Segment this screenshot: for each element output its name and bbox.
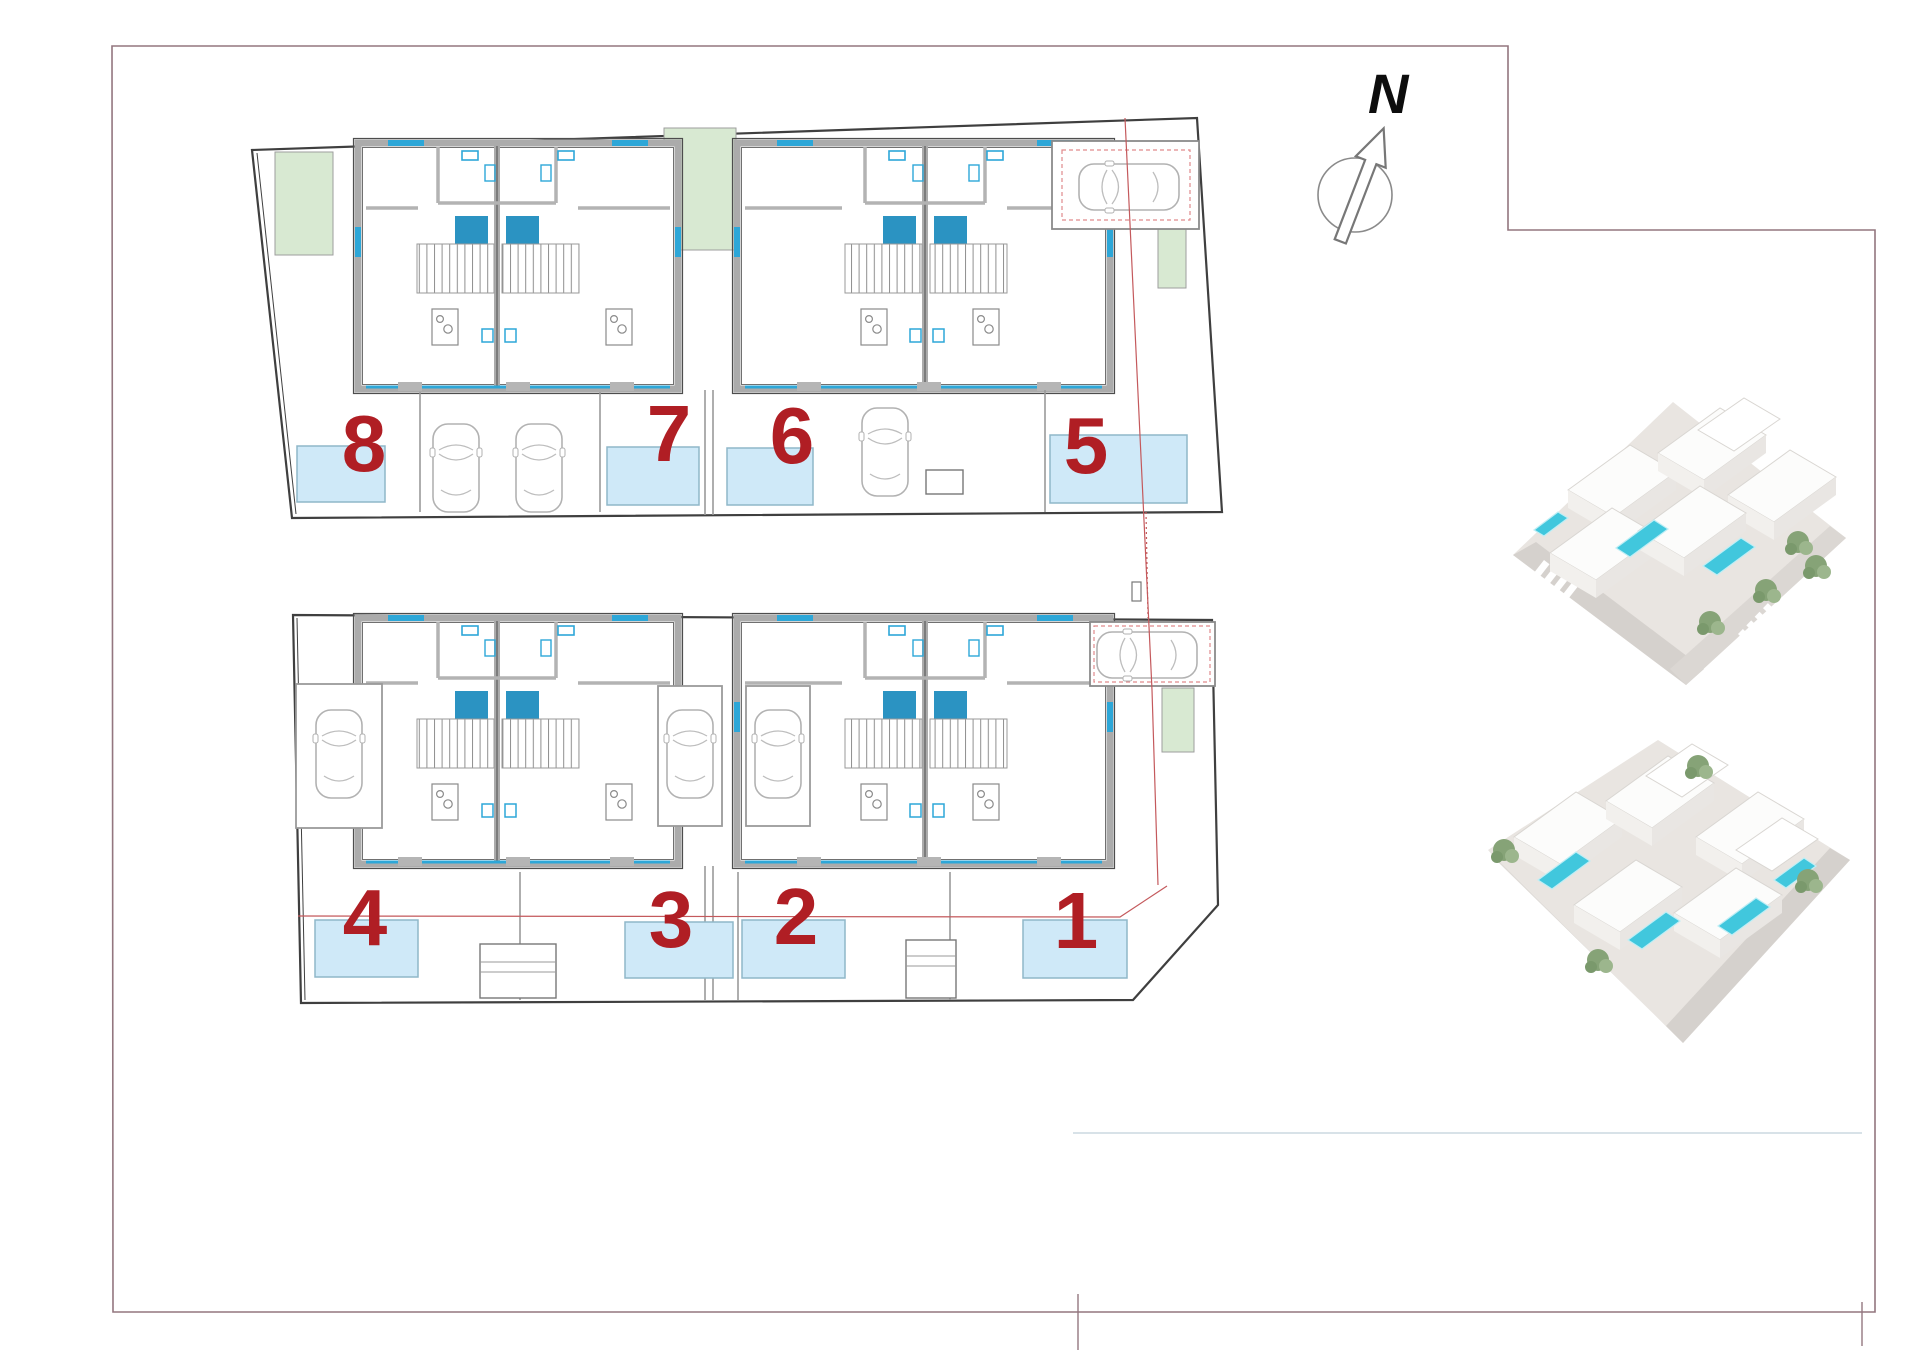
building-units-8-7 (354, 139, 683, 394)
unit-label-6: 6 (754, 396, 830, 478)
site-plan-drawing (0, 0, 1920, 1358)
entry-gate-top (926, 470, 963, 494)
north-compass (1318, 123, 1399, 247)
car-unit-1 (1097, 629, 1197, 681)
car-unit-4 (313, 710, 365, 798)
unit-label-5: 5 (1048, 406, 1124, 488)
unit-label-8: 8 (326, 404, 402, 486)
compass-north-label: N (1368, 66, 1428, 126)
unit-label-7: 7 (631, 394, 707, 476)
car-unit-6 (859, 408, 911, 496)
garden-patch-top-right (1158, 226, 1186, 288)
entry-gate-bottom-left (480, 944, 556, 998)
garage-unit-4 (296, 684, 382, 828)
north-arrow-icon (1325, 123, 1398, 247)
car-unit-2 (752, 710, 804, 798)
unit-label-1: 1 (1038, 881, 1114, 963)
unit-label-2: 2 (758, 877, 834, 959)
lane-pillar (1132, 582, 1141, 601)
garage-unit-5 (1052, 141, 1199, 229)
garden-patch-bottom-right (1162, 688, 1194, 752)
unit-label-4: 4 (327, 878, 403, 960)
aerial-render-top (1513, 398, 1846, 685)
site-plan-page: 8 7 6 5 4 3 2 1 N (0, 0, 1920, 1358)
garden-patch-top-left (275, 152, 333, 255)
building-units-4-3 (354, 614, 683, 869)
crosswalk (1778, 938, 1816, 977)
unit-label-3: 3 (633, 880, 709, 962)
entry-gate-bottom-right (906, 940, 956, 998)
car-unit-7 (513, 424, 565, 512)
aerial-render-bottom (1488, 740, 1850, 1043)
garage-unit-1 (1090, 622, 1215, 686)
car-unit-3 (664, 710, 716, 798)
car-unit-8 (430, 424, 482, 512)
